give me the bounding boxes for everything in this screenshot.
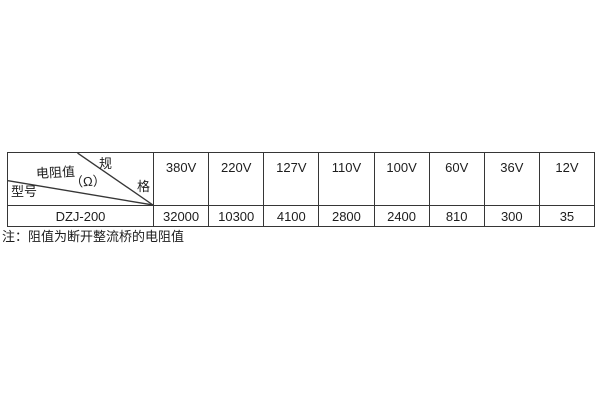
column-header-220v: 220V [209, 153, 264, 206]
resistance-value-380v: 32000 [154, 206, 209, 227]
resistance-value-220v: 10300 [209, 206, 264, 227]
column-header-12v: 12V [539, 153, 594, 206]
spec-table-container: 规 格 电阻值 （Ω） 型号 380V 220V 127V 110V 100V … [7, 152, 595, 227]
corner-header-cell: 规 格 电阻值 （Ω） 型号 [8, 153, 154, 206]
column-header-110v: 110V [319, 153, 374, 206]
resistance-value-100v: 2400 [374, 206, 429, 227]
spec-label-top-char: 规 [99, 157, 112, 170]
resistance-value-36v: 300 [484, 206, 539, 227]
footnote: 注：阻值为断开整流桥的电阻值 [2, 226, 184, 245]
model-cell: DZJ-200 [8, 206, 154, 227]
resistance-value-127v: 4100 [264, 206, 319, 227]
resistance-spec-table: 规 格 电阻值 （Ω） 型号 380V 220V 127V 110V 100V … [7, 152, 595, 227]
model-label: 型号 [11, 185, 37, 198]
column-header-380v: 380V [154, 153, 209, 206]
resistance-value-60v: 810 [429, 206, 484, 227]
table-row: DZJ-200 32000 10300 4100 2800 2400 810 3… [8, 206, 595, 227]
column-header-36v: 36V [484, 153, 539, 206]
spec-label-bottom-char: 格 [137, 180, 150, 193]
column-header-127v: 127V [264, 153, 319, 206]
resistance-unit-label: （Ω） [70, 174, 106, 189]
column-header-100v: 100V [374, 153, 429, 206]
header-row: 规 格 电阻值 （Ω） 型号 380V 220V 127V 110V 100V … [8, 153, 595, 206]
resistance-value-12v: 35 [539, 206, 594, 227]
column-header-60v: 60V [429, 153, 484, 206]
resistance-value-110v: 2800 [319, 206, 374, 227]
